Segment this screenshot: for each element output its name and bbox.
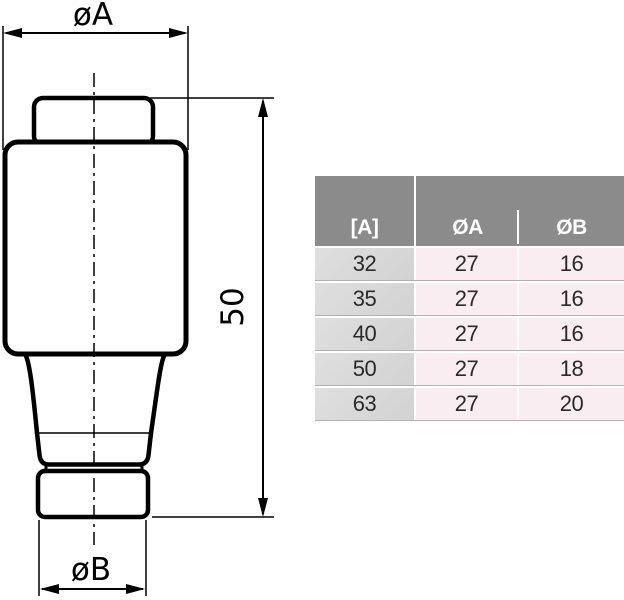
cell-amps: 63 — [315, 388, 416, 420]
cell-diameter-b: 18 — [519, 353, 624, 385]
arrow-right-icon — [126, 584, 145, 594]
col-header-amps: [A] — [315, 176, 416, 246]
cell-diameter-b: 16 — [519, 248, 624, 280]
arrow-up-icon — [258, 98, 268, 117]
cell-diameter-a: 27 — [416, 248, 519, 280]
arrow-left-icon — [40, 584, 59, 594]
fuse-body — [5, 142, 186, 354]
fuse-drawing-svg: øA — [0, 0, 312, 600]
fuse-bottom-cap — [38, 471, 148, 517]
spec-table-header: [A] ØA ØB — [315, 176, 624, 246]
cell-diameter-a: 27 — [416, 353, 519, 385]
cell-diameter-b: 20 — [519, 388, 624, 420]
cell-diameter-b: 16 — [519, 283, 624, 315]
cell-diameter-a: 27 — [416, 283, 519, 315]
cell-diameter-b: 16 — [519, 318, 624, 350]
table-row: 50 27 18 — [315, 353, 624, 386]
cell-amps: 50 — [315, 353, 416, 385]
arrow-left-icon — [3, 28, 22, 38]
cell-diameter-a: 27 — [416, 388, 519, 420]
fuse-outline — [5, 98, 186, 517]
fuse-taper-right — [151, 356, 164, 433]
fuse-technical-drawing: øA — [0, 0, 312, 600]
cell-diameter-a: 27 — [416, 318, 519, 350]
dim-label-height: 50 — [215, 287, 251, 326]
table-row: 35 27 16 — [315, 283, 624, 316]
col-header-diameter-b: ØB — [519, 176, 624, 246]
fuse-taper-left — [26, 356, 37, 433]
spec-table: [A] ØA ØB 32 27 16 35 27 16 40 27 16 50 … — [315, 176, 624, 423]
cell-amps: 40 — [315, 318, 416, 350]
col-header-diameter-a: ØA — [416, 176, 519, 246]
table-row: 63 27 20 — [315, 388, 624, 421]
table-row: 32 27 16 — [315, 248, 624, 281]
dim-label-diameter-a: øA — [73, 0, 113, 33]
dim-label-diameter-b: øB — [71, 552, 111, 588]
arrow-right-icon — [169, 28, 188, 38]
table-row: 40 27 16 — [315, 318, 624, 351]
cell-amps: 32 — [315, 248, 416, 280]
dimension-diameter-b: øB — [39, 520, 146, 596]
arrow-down-icon — [258, 498, 268, 517]
cell-amps: 35 — [315, 283, 416, 315]
